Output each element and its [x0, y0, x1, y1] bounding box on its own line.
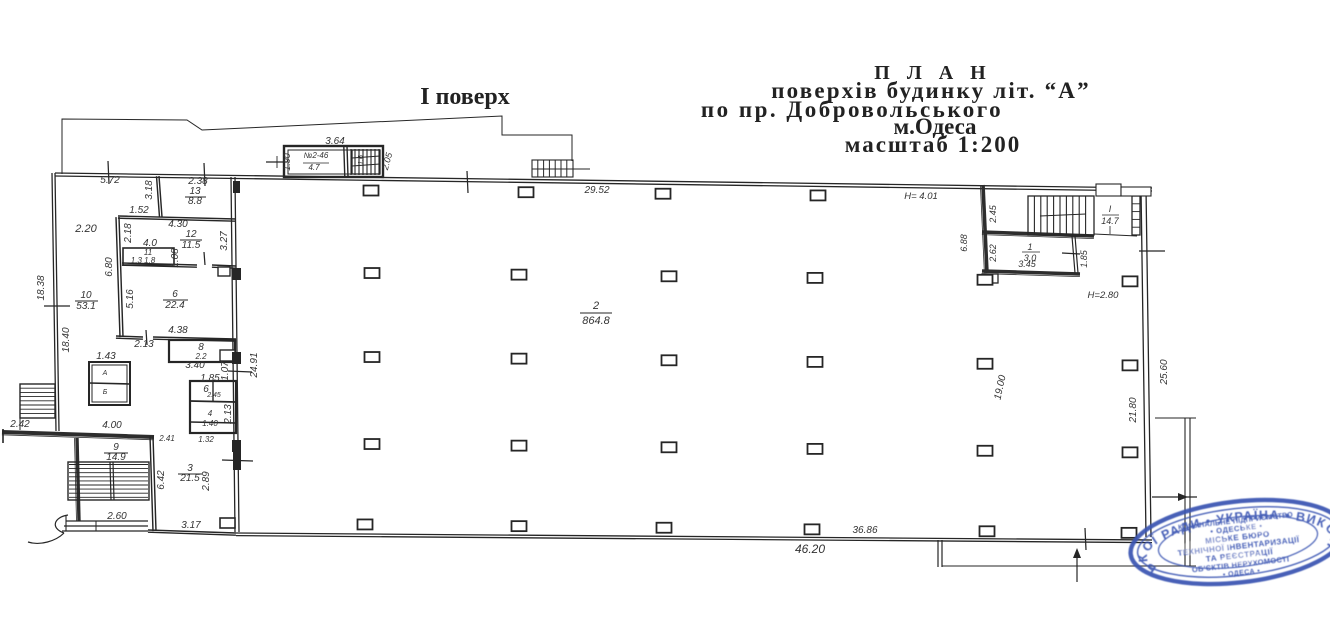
svg-text:4.38: 4.38 [168, 325, 188, 336]
svg-text:3.40: 3.40 [185, 360, 205, 371]
svg-text:22.4: 22.4 [164, 300, 185, 311]
svg-text:21.5: 21.5 [179, 473, 200, 484]
svg-text:18.40: 18.40 [61, 327, 72, 352]
svg-text:1.6: 1.6 [358, 155, 365, 165]
svg-text:1.3 1.8: 1.3 1.8 [131, 256, 156, 265]
svg-text:2.42: 2.42 [9, 419, 30, 430]
svg-text:2.41: 2.41 [158, 434, 175, 443]
svg-text:1.85: 1.85 [200, 373, 220, 384]
svg-text:2.60: 2.60 [106, 511, 127, 522]
svg-text:А: А [102, 370, 108, 377]
svg-text:Б: Б [103, 389, 108, 396]
svg-text:3.27: 3.27 [219, 231, 230, 251]
svg-text:1: 1 [1027, 242, 1032, 252]
svg-text:25.60: 25.60 [1159, 359, 1170, 385]
svg-text:Н= 4.01: Н= 4.01 [904, 191, 938, 202]
svg-text:1.08: 1.08 [170, 248, 181, 268]
svg-text:21.80: 21.80 [1128, 397, 1139, 423]
svg-text:2.45: 2.45 [988, 204, 998, 224]
svg-text:11.5: 11.5 [182, 240, 201, 251]
svg-text:2.45: 2.45 [206, 392, 221, 399]
svg-text:6.80: 6.80 [104, 257, 115, 277]
svg-text:6.42: 6.42 [156, 470, 167, 490]
svg-text:2.13: 2.13 [133, 339, 154, 350]
svg-text:2.20: 2.20 [74, 223, 97, 235]
svg-text:2.18: 2.18 [123, 223, 134, 244]
svg-text:29.52: 29.52 [583, 185, 609, 196]
svg-text:46.20: 46.20 [795, 542, 825, 556]
svg-text:3.45: 3.45 [1018, 259, 1037, 269]
svg-text:масштаб 1:200: масштаб 1:200 [845, 132, 1022, 157]
svg-text:1.40: 1.40 [202, 419, 218, 428]
svg-text:24.91: 24.91 [249, 352, 260, 378]
svg-text:5.72: 5.72 [100, 175, 120, 186]
svg-text:18.38: 18.38 [36, 275, 47, 300]
svg-text:6: 6 [172, 289, 178, 300]
svg-text:3.17: 3.17 [181, 520, 201, 531]
svg-text:8.8: 8.8 [188, 196, 202, 207]
svg-text:864.8: 864.8 [582, 315, 610, 327]
svg-text:2.89: 2.89 [201, 471, 212, 492]
svg-text:3.18: 3.18 [144, 180, 155, 200]
svg-text:4.7: 4.7 [308, 163, 320, 172]
svg-text:2.62: 2.62 [988, 244, 998, 263]
svg-text:2.13: 2.13 [223, 404, 234, 425]
svg-text:1.32: 1.32 [198, 435, 214, 444]
svg-text:14.7: 14.7 [1101, 216, 1120, 226]
svg-text:12: 12 [185, 229, 197, 240]
svg-text:4: 4 [208, 409, 213, 418]
svg-text:1.43: 1.43 [96, 351, 116, 362]
svg-text:4.00: 4.00 [102, 420, 122, 431]
svg-text:14.9: 14.9 [106, 452, 126, 463]
svg-text:2: 2 [592, 300, 599, 312]
svg-text:Н=2.80: Н=2.80 [1088, 290, 1120, 301]
svg-text:3.64: 3.64 [325, 136, 345, 147]
svg-text:№2-46: №2-46 [304, 151, 329, 160]
svg-text:53.1: 53.1 [76, 301, 95, 312]
svg-text:36.86: 36.86 [852, 525, 877, 536]
svg-text:1.90: 1.90 [282, 153, 292, 171]
svg-text:1.07: 1.07 [220, 361, 231, 381]
svg-text:1.85: 1.85 [1079, 249, 1089, 268]
svg-text:5.16: 5.16 [125, 289, 136, 309]
svg-text:10: 10 [80, 290, 92, 301]
svg-text:І поверх: І поверх [420, 84, 510, 110]
svg-text:6.88: 6.88 [959, 234, 969, 252]
svg-text:1.52: 1.52 [129, 205, 149, 216]
